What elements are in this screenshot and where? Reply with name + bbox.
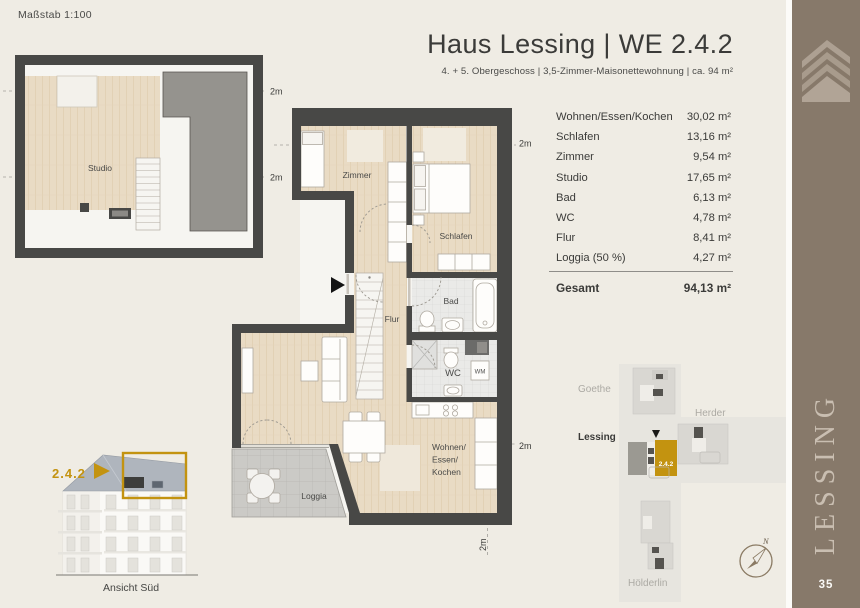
scale-label: Maßstab 1:100 <box>18 9 92 21</box>
table-row: Loggia (50 %) 4,27 m² <box>549 248 733 268</box>
entry-door-leaf <box>347 274 350 294</box>
shower <box>412 340 437 369</box>
table-row: WC 4,78 m² <box>549 208 733 228</box>
room-label-wohnen: Wohnen/ <box>432 442 467 452</box>
height-marker: 2m <box>519 441 532 451</box>
rug <box>380 445 420 491</box>
room-area: 4,78 m² <box>693 212 731 224</box>
wardrobe <box>388 162 407 262</box>
label-herder: Herder <box>695 408 726 419</box>
total-value: 94,13 m² <box>684 281 731 295</box>
table-row: Wohnen/Essen/Kochen 30,02 m² <box>549 107 733 127</box>
room-area: 17,65 m² <box>687 172 731 184</box>
bathtub <box>473 279 497 332</box>
room-label-kochen: Kochen <box>432 467 461 477</box>
loggia-floor <box>232 449 346 517</box>
room-area: 4,27 m² <box>693 252 731 264</box>
bed-zimmer <box>301 131 324 187</box>
room-label: Wohnen/Essen/Kochen <box>556 111 673 123</box>
height-marker: 2m <box>519 139 532 149</box>
page-header: Haus Lessing | WE 2.4.2 4. + 5. Obergesc… <box>427 29 733 77</box>
room-label: Flur <box>556 232 575 244</box>
elevation-view: 2.4.2 Ansicht Süd <box>30 440 230 600</box>
compass-north: N <box>762 536 770 546</box>
unit-number: 2.4.2 <box>659 461 674 468</box>
height-marker: 2m <box>478 538 488 551</box>
roof-terrace-opening <box>122 477 144 488</box>
room-label: Schlafen <box>556 131 600 143</box>
skylight <box>57 76 97 107</box>
elevation-caption: Ansicht Süd <box>103 582 159 594</box>
stairs-upper <box>136 158 160 230</box>
building-herder <box>678 424 728 464</box>
sink-wc <box>444 385 462 396</box>
label-goethe: Goethe <box>578 384 611 395</box>
rug <box>423 128 466 161</box>
stairs-main <box>356 273 383 399</box>
unit-highlight <box>655 440 677 476</box>
table-row: Schlafen 13,16 m² <box>549 127 733 147</box>
total-label: Gesamt <box>556 281 599 295</box>
floor-plan-main: Zimmer Schlafen Bad WC WM Flur Wohnen/ E… <box>225 95 545 565</box>
room-label: Loggia (50 %) <box>556 252 626 264</box>
room-label: WC <box>556 212 575 224</box>
sofa <box>322 337 347 402</box>
room-label-schlafen: Schlafen <box>439 231 472 241</box>
sidebar-building-name: LESSING <box>811 388 841 558</box>
room-label-zimmer: Zimmer <box>343 170 372 180</box>
compass-icon: N <box>740 536 772 577</box>
room-label-essen: Essen/ <box>432 455 459 465</box>
brochure-page: Maßstab 1:100 Haus Lessing | WE 2.4.2 4.… <box>0 0 860 608</box>
kitchen-counter <box>412 402 473 418</box>
table-total-row: Gesamt 94,13 m² <box>549 272 733 295</box>
table-row: Studio 17,65 m² <box>549 168 733 188</box>
building-goethe <box>633 368 675 414</box>
label-hoelderlin: Hölderlin <box>628 578 667 589</box>
tv-board <box>242 348 253 393</box>
room-area: 13,16 m² <box>687 131 731 143</box>
rug <box>347 130 383 162</box>
room-area: 30,02 m² <box>687 111 731 123</box>
door-mark <box>80 203 89 212</box>
toilet-bad <box>419 311 435 332</box>
table-row: Zimmer 9,54 m² <box>549 147 733 167</box>
room-label: Zimmer <box>556 151 594 163</box>
unit-number: 2.4.2 <box>52 466 86 481</box>
table-row: Bad 6,13 m² <box>549 188 733 208</box>
coffee-table <box>301 361 318 381</box>
room-label-studio: Studio <box>88 163 112 173</box>
room-area: 9,54 m² <box>693 151 731 163</box>
room-label-loggia: Loggia <box>301 491 327 501</box>
page-title: Haus Lessing | WE 2.4.2 <box>427 29 733 60</box>
area-table: Wohnen/Essen/Kochen 30,02 m² Schlafen 13… <box>549 107 733 295</box>
page-number: 35 <box>792 579 860 591</box>
room-label-flur: Flur <box>385 314 400 324</box>
table-row: Flur 8,41 m² <box>549 228 733 248</box>
room-label-bad: Bad <box>443 296 458 306</box>
roof-window <box>152 481 163 488</box>
roof-logo-icon <box>799 36 853 102</box>
room-label-wc: WC <box>445 368 461 379</box>
label-wm: WM <box>475 370 486 376</box>
room-label: Studio <box>556 172 588 184</box>
site-plan: 2.4.2 Goethe Herder Lessing Hölderlin N <box>555 360 795 605</box>
label-lessing: Lessing <box>578 432 616 443</box>
page-subtitle: 4. + 5. Obergeschoss | 3,5-Zimmer-Maison… <box>427 66 733 77</box>
room-area: 6,13 m² <box>693 192 731 204</box>
toilet-wc <box>444 348 458 368</box>
room-label: Bad <box>556 192 576 204</box>
kitchen-tall-units <box>475 418 497 489</box>
room-area: 8,41 m² <box>693 232 731 244</box>
bad-door-leaf <box>408 278 411 306</box>
sink-bad <box>442 318 463 332</box>
